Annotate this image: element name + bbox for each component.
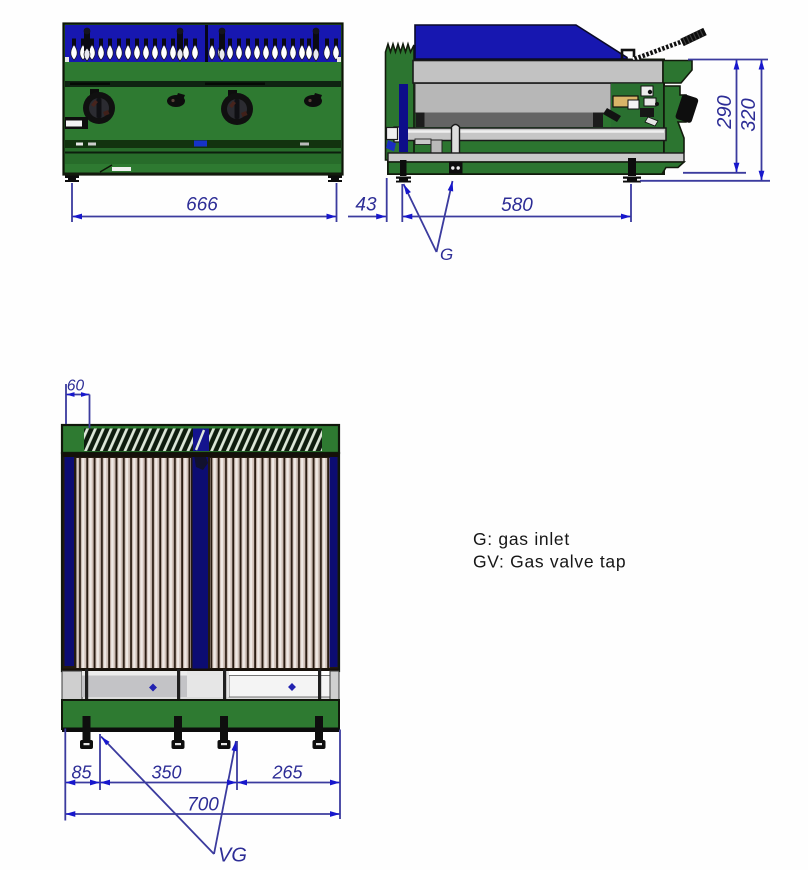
svg-text:290: 290 xyxy=(714,95,736,129)
svg-text:VG: VG xyxy=(218,845,247,867)
svg-text:60: 60 xyxy=(67,378,85,395)
svg-text:GV: Gas valve tap: GV: Gas valve tap xyxy=(473,552,626,572)
svg-text:350: 350 xyxy=(151,763,181,783)
svg-text:320: 320 xyxy=(738,98,760,131)
svg-text:G: gas inlet: G: gas inlet xyxy=(473,529,570,549)
svg-text:700: 700 xyxy=(187,795,219,816)
svg-text:85: 85 xyxy=(71,763,92,783)
svg-text:580: 580 xyxy=(501,195,533,216)
svg-text:265: 265 xyxy=(271,763,303,783)
svg-text:G: G xyxy=(440,245,453,264)
svg-text:666: 666 xyxy=(186,195,218,216)
svg-text:43: 43 xyxy=(355,195,377,216)
